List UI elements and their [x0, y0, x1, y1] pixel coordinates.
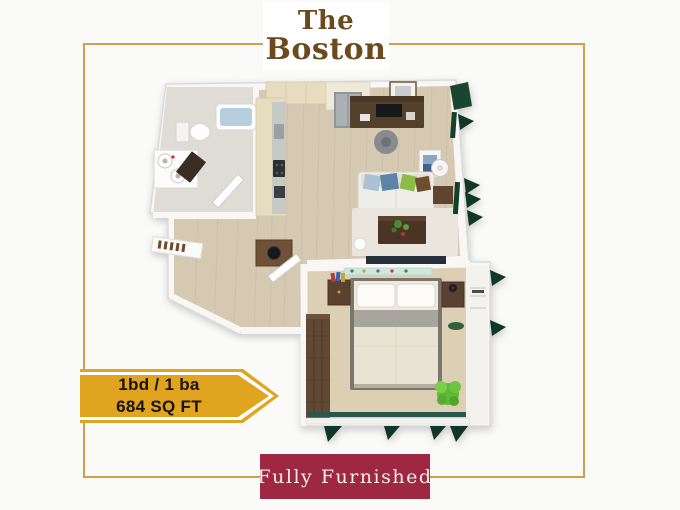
furnished-banner: Fully Furnished	[260, 454, 430, 499]
window-sill	[308, 412, 466, 417]
tv-console	[366, 256, 446, 264]
spec-line-beds-baths: 1bd / 1 ba	[118, 375, 199, 395]
spec-text: 1bd / 1 ba 684 SQ FT	[80, 367, 238, 425]
wall-shelf-decor	[344, 268, 432, 275]
side-table	[433, 186, 453, 204]
wardrobe	[306, 314, 330, 422]
sofa	[358, 172, 434, 214]
title-line-1: The	[298, 8, 354, 34]
spec-arrow-banner: 1bd / 1 ba 684 SQ FT	[80, 367, 282, 425]
toilet-tank	[176, 122, 189, 142]
title-line-2: Boston	[266, 35, 387, 65]
cooktop	[273, 160, 285, 177]
spec-line-sqft: 684 SQ FT	[116, 397, 202, 417]
page-title: The Boston	[263, 2, 389, 70]
kitchen-sink	[274, 124, 284, 139]
bed	[350, 278, 442, 390]
toilet-bowl	[190, 124, 210, 141]
laptop	[376, 104, 402, 117]
potted-plant	[435, 381, 461, 406]
ledge-plant	[448, 322, 464, 330]
furnished-label: Fully Furnished	[257, 466, 432, 488]
oven	[274, 186, 285, 198]
balcony-strip	[466, 266, 488, 424]
